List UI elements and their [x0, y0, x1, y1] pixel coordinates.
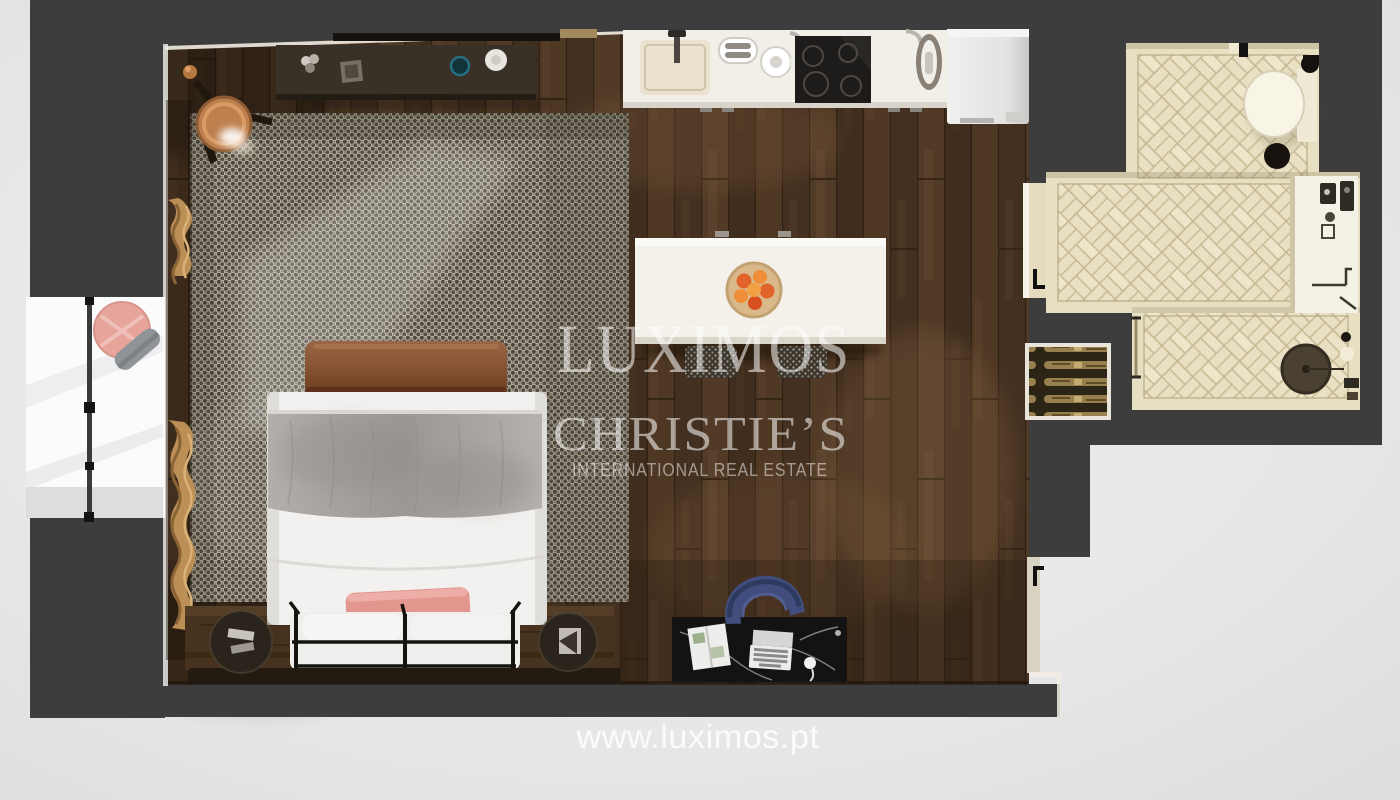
svg-text:www.luximos.pt: www.luximos.pt	[575, 718, 819, 755]
svg-text:INTERNATIONAL REAL ESTATE: INTERNATIONAL REAL ESTATE	[572, 459, 828, 480]
svg-text:LUXIMOS: LUXIMOS	[557, 311, 851, 387]
svg-text:CHRISTIE’S: CHRISTIE’S	[553, 406, 849, 461]
